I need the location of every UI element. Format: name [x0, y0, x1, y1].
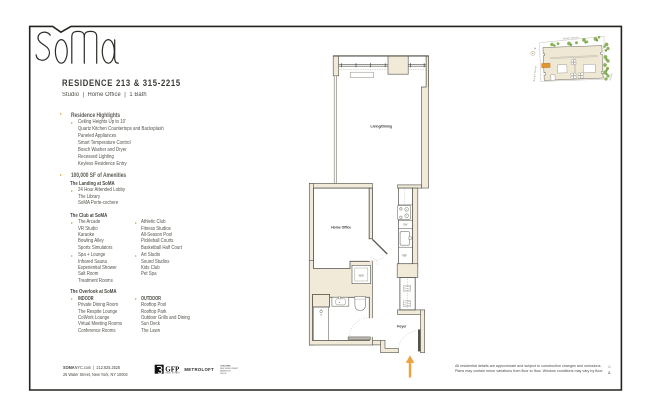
svg-text:Broad Street: Broad Street: [533, 65, 538, 81]
svg-text:Home Office: Home Office: [331, 226, 351, 230]
svg-text:N: N: [534, 46, 537, 50]
svg-text:REF: REF: [402, 256, 407, 258]
svg-text:Foyer: Foyer: [397, 325, 407, 329]
svg-text:W/D: W/D: [359, 273, 364, 277]
svg-text:Plaza: Plaza: [609, 73, 613, 81]
svg-text:Living/Dining: Living/Dining: [371, 124, 392, 128]
